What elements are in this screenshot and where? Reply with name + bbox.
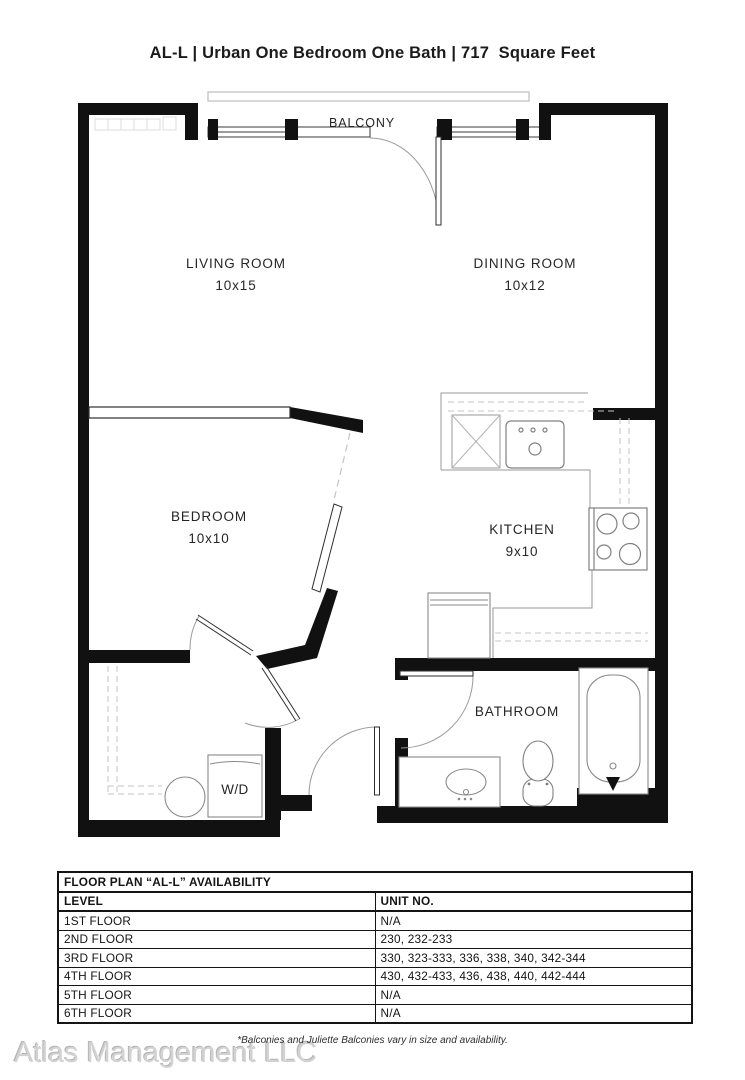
toilet: [523, 741, 553, 806]
units-cell: N/A: [375, 911, 692, 930]
units-cell: N/A: [375, 986, 692, 1005]
bedroom-dims: 10x10: [188, 531, 229, 546]
vanity-sink: [399, 757, 500, 807]
column-header-unit: UNIT NO.: [375, 892, 692, 912]
stove-icon: [589, 508, 647, 570]
living-room-label: LIVING ROOM: [186, 256, 286, 271]
level-cell: 6TH FLOOR: [58, 1004, 375, 1023]
disclaimer-note: *Balconies and Juliette Balconies vary i…: [0, 1035, 745, 1046]
units-cell: 330, 323-333, 336, 338, 340, 342-344: [375, 949, 692, 968]
entry-door: [309, 727, 380, 795]
balcony-label: BALCONY: [329, 116, 395, 130]
washer: [165, 777, 205, 817]
units-cell: N/A: [375, 1004, 692, 1023]
kitchen-dims: 9x10: [506, 544, 539, 559]
table-row: 3RD FLOOR 330, 323-333, 336, 338, 340, 3…: [58, 949, 692, 968]
table-title: FLOOR PLAN “AL-L” AVAILABILITY: [58, 872, 692, 892]
partition-wall: [89, 407, 290, 418]
bathroom-label: BATHROOM: [475, 704, 559, 719]
table-row: 4TH FLOOR 430, 432-433, 436, 438, 440, 4…: [58, 967, 692, 986]
column-header-level: LEVEL: [58, 892, 375, 912]
table-row: 1ST FLOOR N/A: [58, 911, 692, 930]
balcony-door: [370, 137, 441, 225]
units-cell: 230, 232-233: [375, 930, 692, 949]
table-row: 6TH FLOOR N/A: [58, 1004, 692, 1023]
dishwasher: [452, 415, 500, 468]
units-cell: 430, 432-433, 436, 438, 440, 442-444: [375, 967, 692, 986]
living-room-dims: 10x15: [215, 278, 256, 293]
level-cell: 2ND FLOOR: [58, 930, 375, 949]
level-cell: 1ST FLOOR: [58, 911, 375, 930]
washer-dryer-label: W/D: [221, 782, 248, 797]
floor-plan-sheet: AL-L | Urban One Bedroom One Bath | 717 …: [0, 0, 745, 1080]
closet-dashed-lines: [108, 666, 162, 794]
dining-room-dims: 10x12: [504, 278, 545, 293]
refrigerator: [428, 593, 490, 658]
level-cell: 3RD FLOOR: [58, 949, 375, 968]
bathtub: [579, 668, 648, 794]
table-row: 5TH FLOOR N/A: [58, 986, 692, 1005]
dining-room-label: DINING ROOM: [474, 256, 577, 271]
availability-table: FLOOR PLAN “AL-L” AVAILABILITY LEVEL UNI…: [57, 871, 693, 1024]
sliding-door: [312, 433, 350, 592]
level-cell: 5TH FLOOR: [58, 986, 375, 1005]
kitchen-label: KITCHEN: [489, 522, 555, 537]
bedroom-label: BEDROOM: [171, 509, 247, 524]
table-row: 2ND FLOOR 230, 232-233: [58, 930, 692, 949]
bedroom-door: [190, 615, 300, 727]
bathroom-door: [400, 671, 473, 748]
balcony-railing: [208, 92, 529, 101]
heater-unit: [95, 117, 176, 130]
level-cell: 4TH FLOOR: [58, 967, 375, 986]
kitchen-sink: [506, 421, 564, 468]
